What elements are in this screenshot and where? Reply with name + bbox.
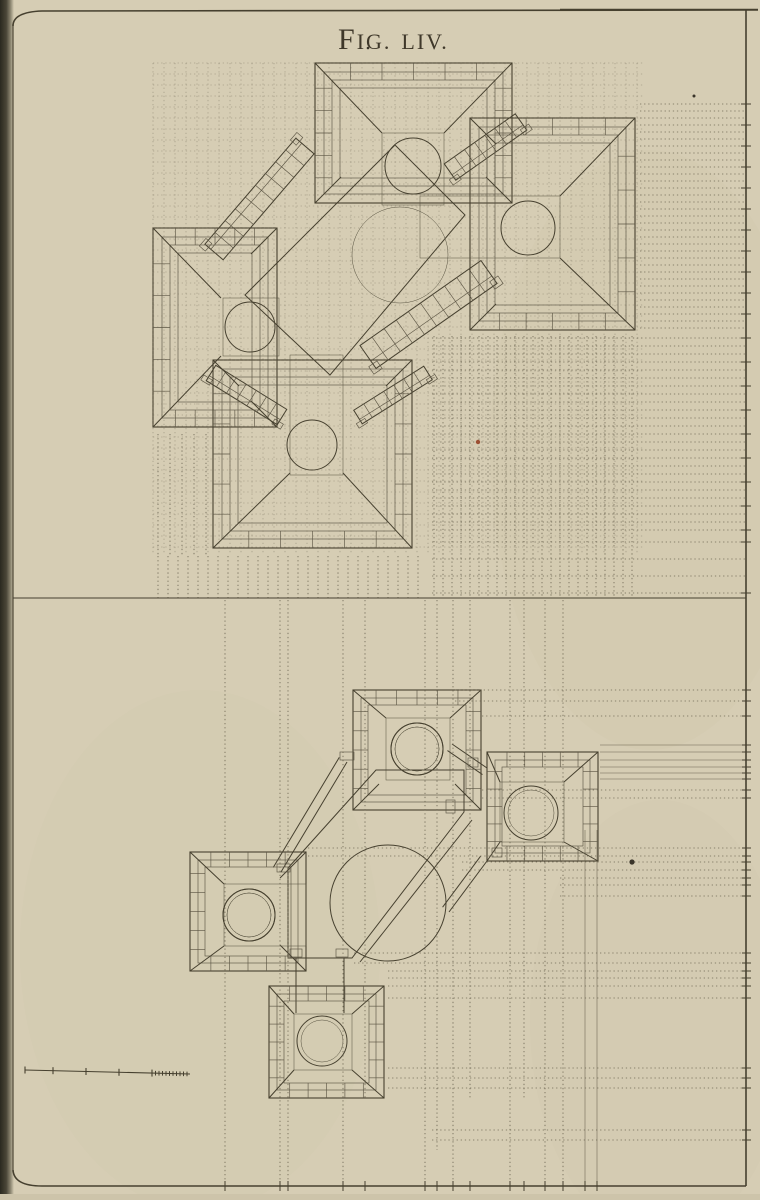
plate-svg: FIG.LIV. <box>0 0 760 1200</box>
engraved-plate-page: FIG.LIV. <box>0 0 760 1200</box>
paper-background <box>0 0 760 1200</box>
